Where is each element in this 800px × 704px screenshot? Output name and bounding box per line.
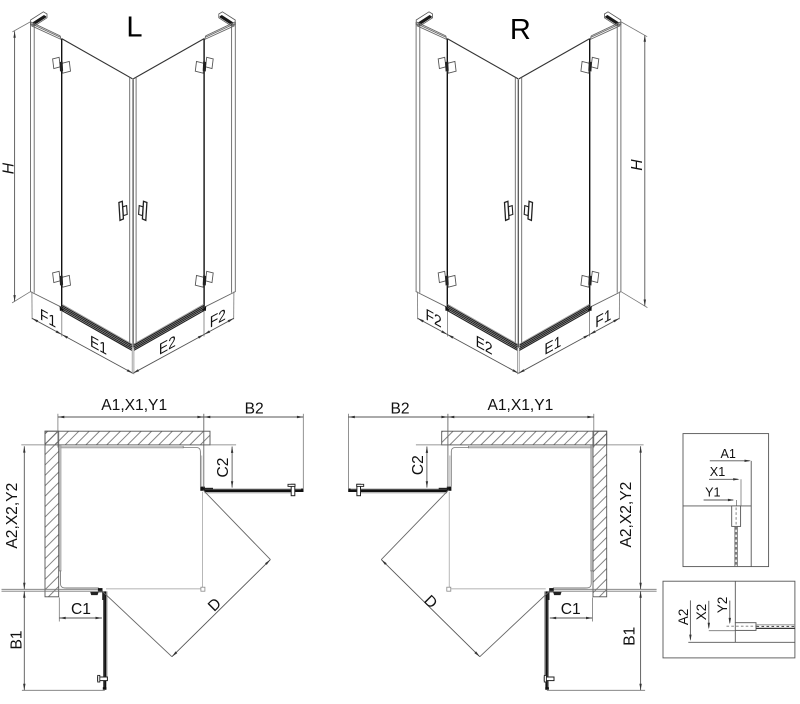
- svg-text:X1: X1: [710, 465, 725, 479]
- svg-text:X2: X2: [694, 604, 709, 620]
- svg-text:R: R: [510, 14, 531, 46]
- svg-text:C2: C2: [215, 458, 232, 478]
- svg-text:A2,X2,Y2: A2,X2,Y2: [4, 483, 21, 549]
- svg-text:A2,X2,Y2: A2,X2,Y2: [618, 482, 635, 548]
- svg-text:H: H: [629, 159, 646, 171]
- svg-text:A1,X1,Y1: A1,X1,Y1: [101, 397, 167, 414]
- svg-text:A1: A1: [720, 447, 735, 461]
- svg-text:B2: B2: [390, 400, 409, 417]
- svg-text:C1: C1: [561, 601, 581, 618]
- svg-text:L: L: [126, 12, 142, 44]
- svg-text:H: H: [1, 162, 18, 174]
- svg-text:A1,X1,Y1: A1,X1,Y1: [487, 397, 553, 414]
- svg-text:C1: C1: [71, 601, 91, 618]
- svg-text:B2: B2: [245, 400, 264, 417]
- svg-text:A2: A2: [676, 609, 691, 625]
- svg-text:Y2: Y2: [715, 597, 730, 613]
- svg-text:B1: B1: [8, 630, 25, 649]
- svg-text:C2: C2: [410, 455, 427, 475]
- svg-text:B1: B1: [621, 627, 638, 646]
- svg-text:Y1: Y1: [705, 486, 720, 500]
